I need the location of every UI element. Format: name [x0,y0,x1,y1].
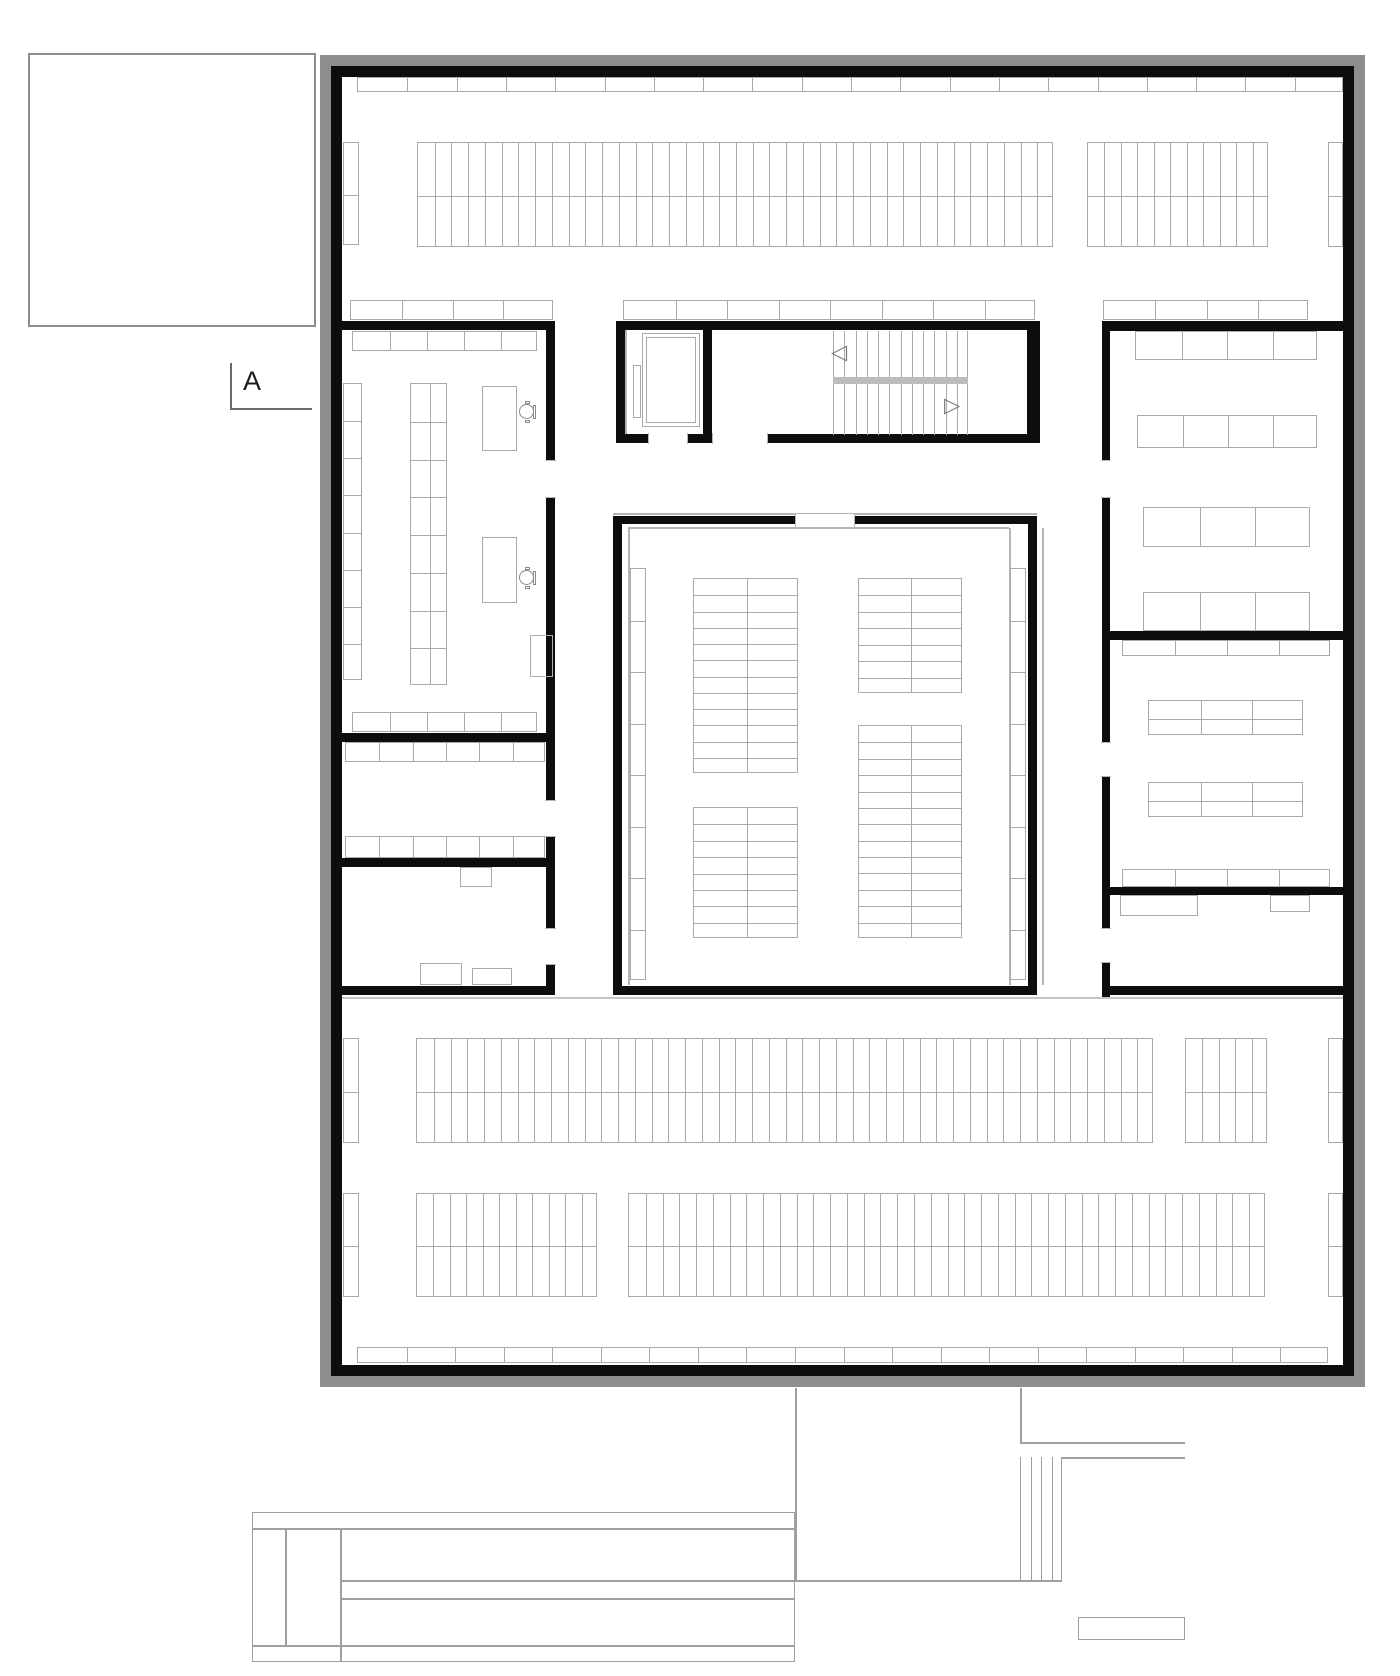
top-wall-shelf-row-line [1295,78,1296,91]
stacks-top-right-group-line [1137,143,1138,246]
hall-table-group-2-line [859,628,961,629]
stacks-b-group2-line [931,1194,932,1296]
hall-table-group-2 [858,578,962,693]
stair-lower-treads-line [967,384,968,435]
hall-table-group-4-line [859,792,961,793]
readingroom-chair2-back [533,571,536,585]
rightroom3-counter [1120,895,1198,916]
shelf-row-left-core-line [503,301,504,319]
stacks-b-group2-line [797,1194,798,1296]
stair-upper-treads-line [934,331,935,377]
stacks-b-group2 [628,1193,1265,1297]
hall-table-group-3-line [694,923,797,924]
rightroom3-shelf [1270,895,1310,912]
stacks-top-right-group-line [1170,143,1171,246]
stacks-a-main-line [451,1039,452,1142]
hall-entry-door-frame [795,513,855,528]
stacks-b-group2-line [1115,1194,1116,1296]
rightroom1-table-row3 [1143,507,1310,547]
readingroom-table-strip-left-line [344,644,361,645]
hall-table-group-3-line [694,906,797,907]
readingroom-table-strip-mid-line [411,497,446,498]
stacks-top-main-line [669,143,670,246]
stacks-b-group1 [416,1193,597,1297]
stacks-top-left-strip [343,142,359,245]
stacks-b-right-strip-line [1329,1246,1342,1247]
bottom-wall-shelf-row-line [746,1348,747,1362]
stacks-a-main-line [652,1039,653,1142]
stacks-b-group2-line [1182,1194,1183,1296]
readingroom-shelf-top-line [390,332,391,350]
bottom-wall-shelf-row-line [407,1348,408,1362]
stair-upper-treads-line [867,331,868,377]
midroom-shelf-bottom-line [513,837,514,857]
readingroom-table-strip-left-line [344,533,361,534]
stacks-b-group2-line [1199,1194,1200,1296]
readingroom-shelf-top [352,331,537,351]
stacks-a-left-strip [343,1038,359,1143]
stacks-b-group1-line [417,1246,596,1247]
stacks-a-main-line [819,1039,820,1142]
hall-wall-strip-right-line [1011,827,1025,828]
stacks-b-group2-line [1249,1194,1250,1296]
hall-table-group-2-line [859,595,961,596]
hall-table-group-2-line [859,661,961,662]
midroom-shelf-top-line [513,743,514,761]
rightroom2-shelf-top-line [1175,641,1176,655]
stacks-a-left-strip-line [344,1092,358,1093]
readingroom-table-strip-mid-line [411,460,446,461]
stair-lower-treads-line [923,384,924,435]
bottom-wall-shelf-row-line [1086,1348,1087,1362]
bottom-wall-shelf-row-line [698,1348,699,1362]
rightroom1-table-row1-line [1227,332,1228,359]
shelf-row-right-core-line [1258,301,1259,319]
stacks-top-left-strip-line [344,195,358,196]
stacks-a-main-line [1087,1039,1088,1142]
stacks-top-main-line [820,143,821,246]
hall-table-group-1-line [694,758,797,759]
stair-upper-treads [833,331,968,377]
midroom-shelf-bottom-line [479,837,480,857]
midroom-shelf-bottom-line [446,837,447,857]
readingroom-shelf-top-line [427,332,428,350]
readingroom-table-strip-left-line [344,570,361,571]
stacks-a-main-line [836,1039,837,1142]
rightroom1-table-row3-line [1200,508,1201,546]
hall-table-group-1 [693,578,798,773]
stacks-top-main-line [602,143,603,246]
site-stair-ladder-line [1031,1457,1032,1580]
stacks-a-main-line [719,1039,720,1142]
hall-wall-strip-left-line [631,724,645,725]
stair-upper-treads-line [967,331,968,377]
stacks-a-right-group-line [1219,1039,1220,1142]
top-wall-shelf-row [357,77,1343,92]
hall-table-group-2-line [859,678,961,679]
stacks-b-right-strip [1328,1193,1343,1297]
shelf-row-mid-core-line [830,301,831,319]
section-marker-hline [230,408,312,410]
stacks-b-group2-line [1098,1194,1099,1296]
shelf-row-mid-core-line [727,301,728,319]
top-wall-shelf-row-line [752,78,753,91]
top-wall-shelf-row-line [555,78,556,91]
rightroom1-table-row4-line [1255,593,1256,630]
readingroom-table-strip-mid-line [411,535,446,536]
stacks-a-main-line [467,1039,468,1142]
readingroom-chair1-arm-top [525,401,530,404]
stacks-a-main-line [1037,1039,1038,1142]
stacks-a-right-strip-line [1329,1092,1342,1093]
stacks-top-right-group-line [1121,143,1122,246]
stacks-top-main-line [786,143,787,246]
hall-table-group-3-line [747,808,748,937]
rightroom2-shelf-top-line [1279,641,1280,655]
stair-upper-treads-line [856,331,857,377]
stacks-top-main-line [920,143,921,246]
readingroom-desk2 [482,537,517,603]
bottomroom-rect2 [472,968,512,985]
stacks-b-group2-line [880,1194,881,1296]
stacks-b-group2-line [830,1194,831,1296]
rightroom2-table-grid2-line [1252,783,1253,816]
stacks-b-group1-line [483,1194,484,1296]
stacks-a-main-line [936,1039,937,1142]
hall-table-group-4-line [859,906,961,907]
readingroom-shelf-top-line [464,332,465,350]
hall-outer-right-line [1042,528,1044,985]
stacks-a-main-line [601,1039,602,1142]
hall-table-group-3-line [694,857,797,858]
stacks-a-main-line [752,1039,753,1142]
rightroom2-shelf-bottom-line [1279,870,1280,886]
hall-table-group-4-line [859,923,961,924]
site-terrace-second-line [1062,1457,1185,1459]
hall-table-group-4-line [859,857,961,858]
stacks-b-group2-line [1149,1194,1150,1296]
elevator-door-panel [633,365,641,418]
midroom-door-opening [545,800,556,837]
stacks-b-group2-line [1132,1194,1133,1296]
site-bar-outline [252,1512,795,1662]
stacks-top-main-line [535,143,536,246]
readingroom-table-strip-mid [410,383,447,685]
bottom-wall-shelf-row-line [1183,1348,1184,1362]
stacks-top-main-line [937,143,938,246]
core-left-wall [616,321,625,443]
stacks-top-main-line [719,143,720,246]
hall-table-group-1-line [694,709,797,710]
bottom-wall-shelf-row [357,1347,1328,1363]
rightroom2-table-grid2-line [1149,801,1302,802]
stair-lower-treads-line [878,384,879,435]
hall-table-group-4-line [859,873,961,874]
bottom-wall-shelf-row-line [552,1348,553,1362]
bottom-wall-shelf-row-line [455,1348,456,1362]
bottom-wall-shelf-row-line [892,1348,893,1362]
stacks-b-group2-line [1031,1194,1032,1296]
rightroom2-table-grid1 [1148,700,1303,735]
bottom-wall-shelf-row-line [844,1348,845,1362]
stacks-b-group1-line [433,1194,434,1296]
rightroom1-table-row2-line [1228,416,1229,447]
shelf-row-mid-core-line [779,301,780,319]
site-stair-ladder-line [1041,1457,1042,1580]
bottomroom-rect1 [420,963,462,985]
top-wall-shelf-row-line [1098,78,1099,91]
rightroom1-table-row2 [1137,415,1317,448]
stacks-b-group2-line [730,1194,731,1296]
top-wall-shelf-row-line [900,78,901,91]
stacks-top-main-line [803,143,804,246]
context-rect-topleft [28,53,316,327]
readingroom-table-strip-left-line [344,458,361,459]
stacks-top-right-group-line [1253,143,1254,246]
stacks-top-main-line [652,143,653,246]
midroom-shelf-bottom [345,836,545,858]
top-wall-shelf-row-line [1196,78,1197,91]
site-terrace-top-line [1020,1442,1185,1444]
bottom-wall-shelf-row-line [941,1348,942,1362]
stacks-top-main-line [736,143,737,246]
readingroom-shelf-top-line [501,332,502,350]
readingroom-shelf-bottom-line [501,713,502,731]
hall-wall-strip-right-line [1011,672,1025,673]
stacks-top-right-group-line [1088,196,1267,197]
stacks-top-main-line [552,143,553,246]
rightroom1-table-row1 [1135,331,1317,360]
stacks-b-left-strip [343,1193,359,1297]
rightroom2-shelf-top [1122,640,1330,656]
rightroom3-door-opening [1101,928,1111,963]
stacks-b-group2-line [679,1194,680,1296]
top-wall-shelf-row-line [802,78,803,91]
readingroom-shelf-bottom [352,712,537,732]
rightroom2-shelf-bottom-line [1227,870,1228,886]
midroom-shelf-top-line [379,743,380,761]
rightroom2-table-grid1-line [1252,701,1253,734]
stacks-b-group2-line [1015,1194,1016,1296]
stacks-top-main-line [853,143,854,246]
hall-wall-strip-left-line [631,775,645,776]
rightroom1-table-row2-line [1273,416,1274,447]
section-marker-label: A [243,366,262,397]
midroom-shelf-bottom-line [413,837,414,857]
stacks-b-group1-line [466,1194,467,1296]
leftblock-top-wall [342,321,555,330]
hall-table-group-1-line [747,579,748,772]
stacks-top-main-line [954,143,955,246]
hall-table-group-3-line [694,874,797,875]
top-wall-shelf-row-line [950,78,951,91]
stacks-top-right-strip [1328,142,1343,247]
hall-table-group-1-line [694,628,797,629]
hall-table-group-1-line [694,725,797,726]
shelf-row-left-core-line [453,301,454,319]
stacks-a-main-line [618,1039,619,1142]
hall-wall-strip-right-line [1011,775,1025,776]
stacks-a-main-line [585,1039,586,1142]
stacks-a-main-line [1121,1039,1122,1142]
shelf-row-right-core-line [1155,301,1156,319]
site-stair-ladder-line [1020,1457,1021,1580]
stacks-a-right-group-line [1235,1039,1236,1142]
stacks-top-right-group-line [1220,143,1221,246]
stacks-b-group2-line [1082,1194,1083,1296]
rightblock-bottom-wall [1102,986,1354,995]
stacks-a-right-group-line [1252,1039,1253,1142]
site-underpass-left-line [795,1388,797,1580]
readingroom-table-strip-left-line [344,421,361,422]
hall-table-group-3-line [694,841,797,842]
rightroom1-table-row4 [1143,592,1310,631]
stacks-b-group2-line [629,1246,1264,1247]
leftblock-divider2 [342,858,546,867]
hall-table-group-4-line [859,890,961,891]
floor-plan-canvas: A ◁▷ [0,0,1400,1676]
stacks-b-group1-line [549,1194,550,1296]
hall-table-group-2-line [859,645,961,646]
stacks-top-right-group-line [1203,143,1204,246]
core-top-wall [616,321,1040,330]
stacks-a-main-line [1104,1039,1105,1142]
stair-lower-treads-line [844,384,845,435]
readingroom-table-strip-left-line [344,607,361,608]
stacks-b-group2-line [981,1194,982,1296]
midroom-shelf-top-line [413,743,414,761]
stacks-a-main-line [920,1039,921,1142]
rightblock-divider1 [1102,631,1354,640]
top-wall-shelf-row-line [457,78,458,91]
site-underpass-right-line [1020,1388,1022,1442]
stacks-a-main-line [534,1039,535,1142]
rightroom2-table-grid1-line [1149,719,1302,720]
stacks-top-main-line [1021,143,1022,246]
stacks-b-group2-line [763,1194,764,1296]
stacks-a-main-line [668,1039,669,1142]
hall-table-group-4-line [859,808,961,809]
stacks-b-group2-line [646,1194,647,1296]
hall-wall-strip-left-line [631,930,645,931]
stacks-top-right-strip-line [1329,196,1342,197]
stacks-b-group1-line [516,1194,517,1296]
rightroom1-table-row1-line [1273,332,1274,359]
shelf-row-mid-core [623,300,1035,320]
readingroom-table-strip-left-line [344,495,361,496]
hall-wall-strip-right-line [1011,878,1025,879]
hall-wall-strip-right-line [1011,621,1025,622]
stacks-b-group1-line [532,1194,533,1296]
stacks-top-right-group-line [1236,143,1237,246]
hall-right-wall [1028,516,1037,995]
elevator-door-opening [648,433,688,444]
shelf-row-left-core [350,300,553,320]
rightblock-left-wall [1102,321,1110,997]
bottom-wall-shelf-row-line [795,1348,796,1362]
stacks-top-main-line [585,143,586,246]
stacks-a-main-line [970,1039,971,1142]
stacks-a-main-line [802,1039,803,1142]
site-stair-ladder [1020,1457,1062,1580]
readingroom-shelf-bottom-line [427,713,428,731]
rightroom2-shelf-bottom-line [1175,870,1176,886]
stacks-top-right-group [1087,142,1268,247]
readingroom-corner-shelf [530,635,553,677]
core-divider-wall [703,321,712,443]
rightroom2-table-grid2-line [1201,783,1202,816]
stacks-a-main-line [786,1039,787,1142]
stacks-top-main-line [686,143,687,246]
stair-lower-treads-line [889,384,890,435]
stair-lower-treads-line [901,384,902,435]
shelf-row-mid-core-line [676,301,677,319]
stacks-a-main [416,1038,1153,1143]
hall-wall-strip-left-line [631,878,645,879]
stacks-a-main-line [869,1039,870,1142]
stacks-b-group2-line [964,1194,965,1296]
stacks-top-right-group-line [1187,143,1188,246]
readingroom-table-strip-mid-line [411,648,446,649]
rightroom1-door-opening [1101,460,1111,498]
rightroom2-door-opening [1101,742,1111,777]
stacks-top-main-line [836,143,837,246]
stacks-top-main-line [485,143,486,246]
midroom-shelf-top-line [446,743,447,761]
stacks-b-left-strip-line [344,1246,358,1247]
rightroom1-table-row1-line [1182,332,1183,359]
stacks-b-group2-line [746,1194,747,1296]
stair-upper-treads-line [946,331,947,377]
shelf-row-right-core-line [1207,301,1208,319]
top-wall-shelf-row-line [1147,78,1148,91]
top-wall-shelf-row-line [506,78,507,91]
shelf-row-right-core [1103,300,1308,320]
rightroom2-shelf-top-line [1227,641,1228,655]
hall-table-group-1-line [694,677,797,678]
stacks-a-main-line [702,1039,703,1142]
bottomroom-table [460,867,492,887]
stacks-a-main-line [903,1039,904,1142]
stacks-b-group1-line [499,1194,500,1296]
stacks-b-group2-line [864,1194,865,1296]
stacks-a-main-line [501,1039,502,1142]
readingroom-table-strip-mid-line [411,573,446,574]
stacks-a-right-group [1185,1038,1267,1143]
readingroom-desk1 [482,386,517,451]
stacks-top-main-line [970,143,971,246]
bottom-wall-shelf-row-line [1280,1348,1281,1362]
stair-up-arrow-icon: ◁ [831,342,847,363]
midroom-shelf-bottom-line [379,837,380,857]
stair-lower-treads-line [833,384,834,435]
midroom-shelf-top-line [479,743,480,761]
rightroom1-table-row3-line [1255,508,1256,546]
rightblock-top-wall [1102,321,1354,331]
stair-door-opening [712,433,768,444]
stacks-a-main-line [568,1039,569,1142]
stacks-a-main-line [987,1039,988,1142]
stair-upper-treads-line [923,331,924,377]
stacks-top-main-line [569,143,570,246]
stair-upper-treads-line [912,331,913,377]
hall-wall-strip-left-line [631,621,645,622]
bottomroom-door-opening [545,928,556,965]
hall-left-wall [613,516,622,995]
stacks-top-right-group-line [1104,143,1105,246]
readingroom-chair1-back [533,405,536,419]
hall-bottom-wall [613,986,1037,995]
